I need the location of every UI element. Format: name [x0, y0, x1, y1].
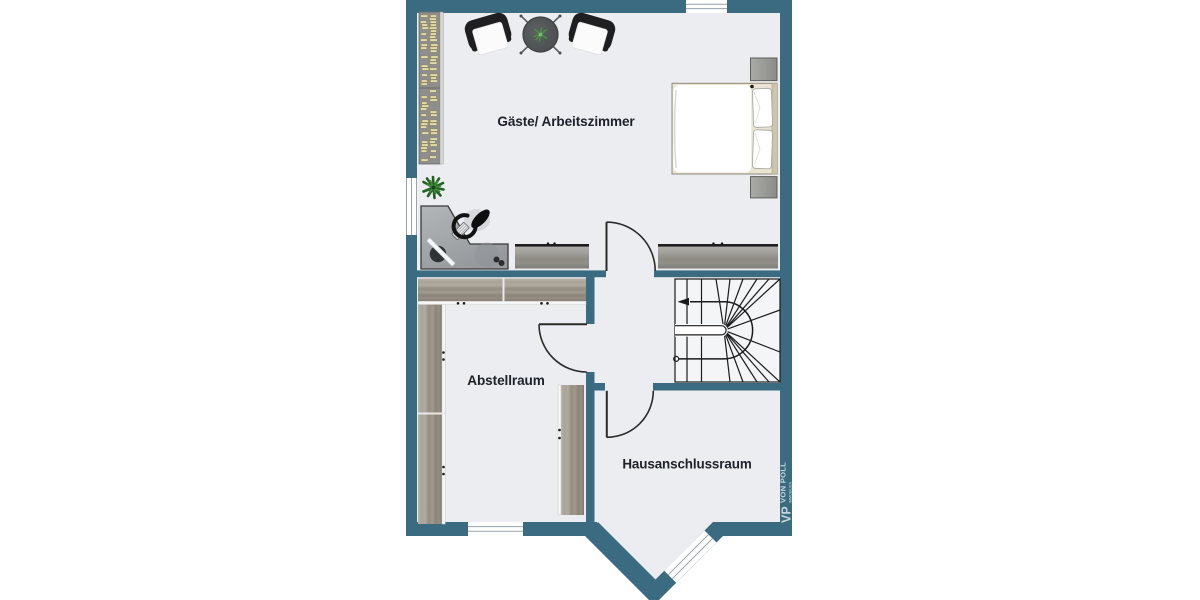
svg-text:Hausanschlussraum: Hausanschlussraum [622, 457, 751, 472]
svg-text:IMMOBILIEN: IMMOBILIEN [789, 481, 793, 503]
svg-text:VON POLL: VON POLL [779, 462, 788, 503]
svg-text:Gäste/ Arbeitszimmer: Gäste/ Arbeitszimmer [497, 114, 635, 129]
svg-text:Abstellraum: Abstellraum [467, 373, 544, 388]
svg-text:VP: VP [780, 506, 794, 523]
